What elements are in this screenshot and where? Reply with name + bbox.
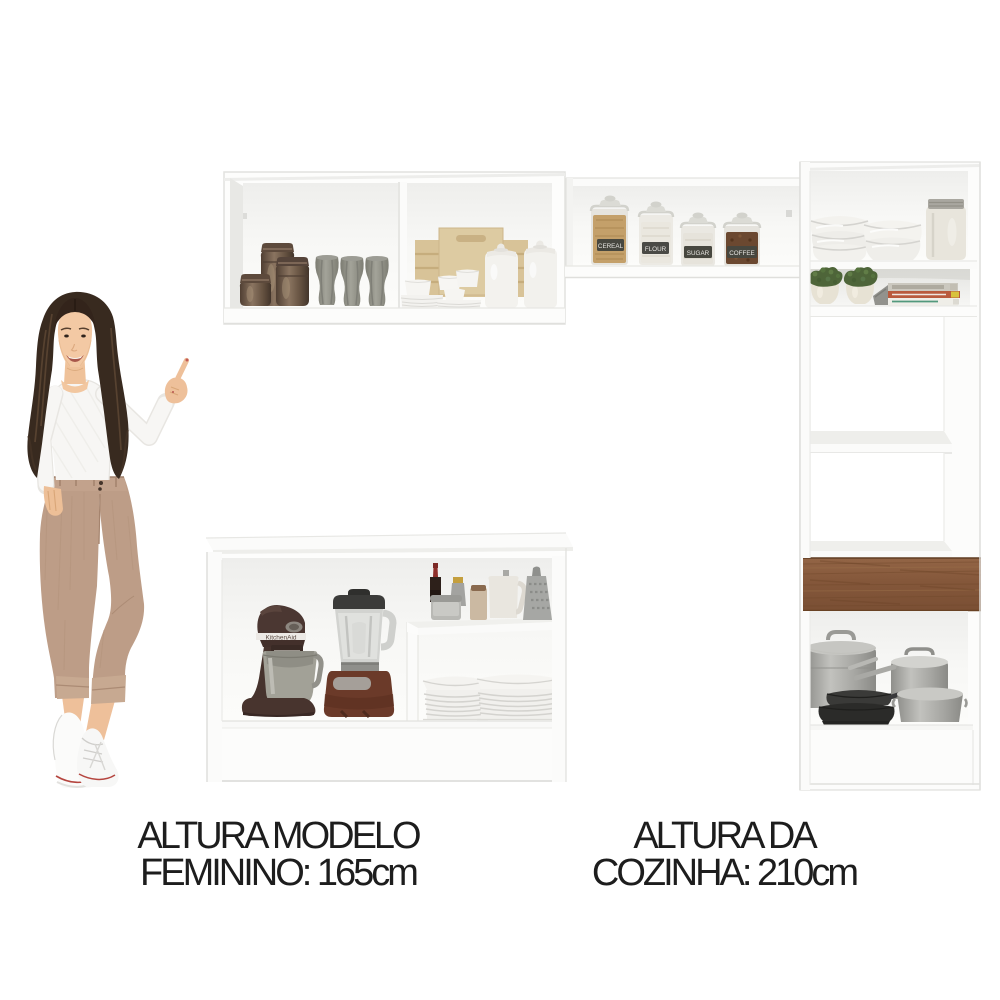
svg-text:FLOUR: FLOUR xyxy=(645,246,667,253)
svg-text:CEREAL: CEREAL xyxy=(598,243,624,250)
svg-text:COFFEE: COFFEE xyxy=(729,250,755,257)
svg-text:SUGAR: SUGAR xyxy=(687,250,710,257)
